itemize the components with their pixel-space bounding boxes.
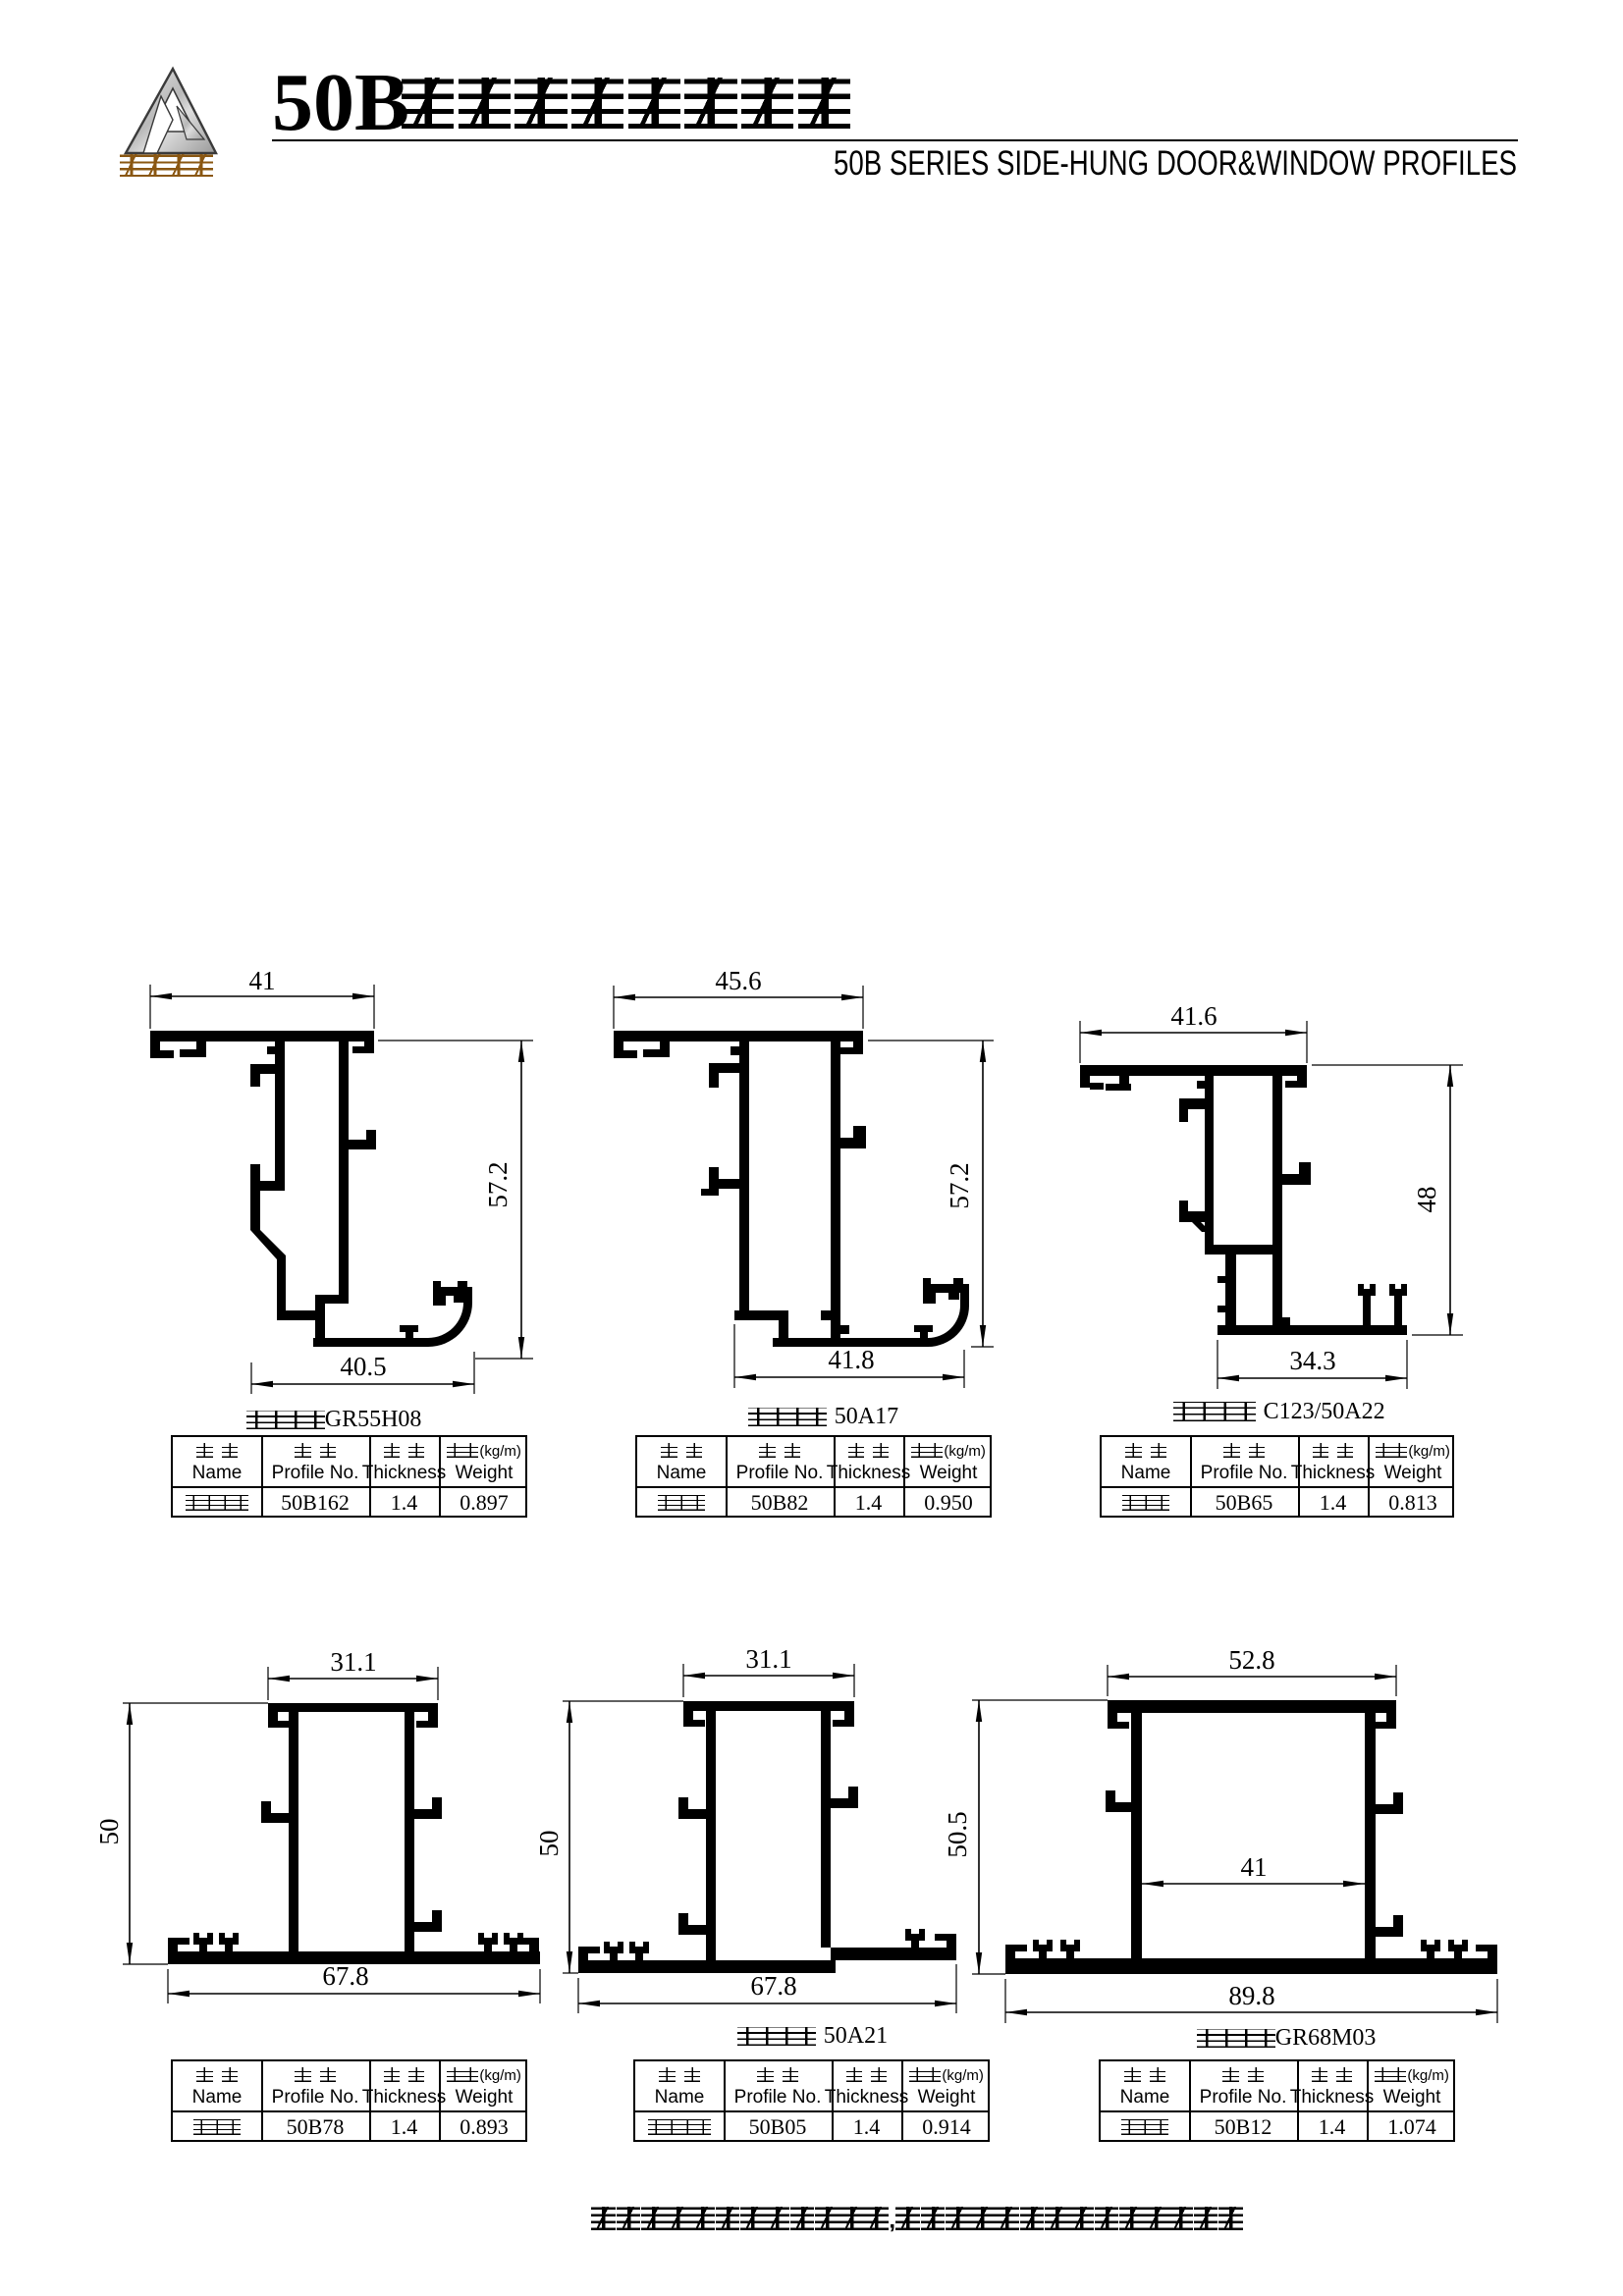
svg-text:67.8: 67.8 bbox=[322, 1961, 368, 1991]
svg-text:41: 41 bbox=[1241, 1852, 1268, 1882]
svg-text:57.2: 57.2 bbox=[483, 1161, 513, 1207]
svg-text:41: 41 bbox=[249, 966, 276, 995]
svg-text:50: 50 bbox=[534, 1831, 564, 1857]
svg-text:45.6: 45.6 bbox=[715, 966, 761, 995]
svg-text:31.1: 31.1 bbox=[745, 1644, 791, 1674]
svg-text:67.8: 67.8 bbox=[750, 1971, 796, 2001]
svg-text:41.8: 41.8 bbox=[828, 1345, 874, 1374]
svg-text:48: 48 bbox=[1412, 1187, 1441, 1213]
svg-text:52.8: 52.8 bbox=[1228, 1645, 1274, 1675]
svg-text:34.3: 34.3 bbox=[1289, 1346, 1335, 1375]
svg-text:89.8: 89.8 bbox=[1228, 1981, 1274, 2010]
svg-text:31.1: 31.1 bbox=[330, 1647, 376, 1677]
svg-text:57.2: 57.2 bbox=[945, 1162, 974, 1208]
svg-text:41.6: 41.6 bbox=[1170, 1001, 1217, 1031]
svg-text:40.5: 40.5 bbox=[340, 1352, 386, 1381]
svg-text:50: 50 bbox=[94, 1819, 124, 1845]
svg-text:50.5: 50.5 bbox=[943, 1811, 972, 1857]
